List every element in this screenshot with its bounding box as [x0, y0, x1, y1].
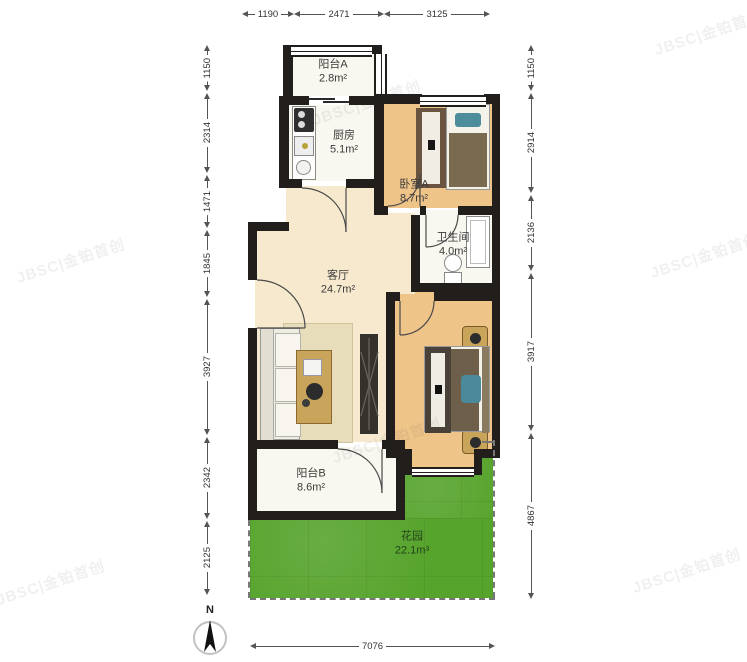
room-name: 厨房 — [330, 129, 358, 143]
dimension-right-4: 4867 — [524, 433, 538, 599]
room-area: 4.0m² — [437, 245, 470, 259]
room-name: 花园 — [395, 530, 429, 544]
dimension-right-3: 3917 — [524, 273, 538, 431]
room-area: 24.7m² — [321, 283, 355, 297]
dimension-left-5: 2342 — [200, 437, 214, 519]
dimension-right-2: 2136 — [524, 195, 538, 271]
dimension-top-0: 1190 — [242, 8, 294, 20]
room-label-garden: 花园 22.1m³ — [395, 530, 429, 559]
dimension-left-1: 2314 — [200, 93, 214, 173]
compass-icon — [188, 616, 232, 660]
room-area: 8.6m² — [296, 481, 325, 495]
room-name: 阳台B — [296, 467, 325, 481]
room-label-living-room: 客厅 24.7m² — [321, 269, 355, 298]
room-label-kitchen: 厨房 5.1m² — [330, 129, 358, 158]
dimension-bottom-0: 7076 — [250, 640, 495, 652]
dimension-top-1: 2471 — [294, 8, 384, 20]
north-arrow: N — [188, 604, 232, 662]
room-name: 客厅 — [321, 269, 355, 283]
room-name: 阳台A — [318, 58, 347, 72]
room-name: 卧室A — [399, 178, 428, 192]
dimension-left-6: 2125 — [200, 521, 214, 595]
room-area: 5.1m² — [330, 143, 358, 157]
floor-plan: 阳台A 2.8m² 厨房 5.1m² 卧室A 8.7m² 卫生间 4.0m² 客… — [0, 0, 747, 662]
room-area: 22.1m³ — [395, 544, 429, 558]
room-area: 2.8m² — [318, 72, 347, 86]
room-area: 8.7m² — [399, 192, 428, 206]
dimension-right-0: 1150 — [524, 45, 538, 91]
room-label-balcony-a: 阳台A 2.8m² — [318, 58, 347, 87]
dimension-top-2: 3125 — [384, 8, 490, 20]
dimension-left-4: 3927 — [200, 299, 214, 435]
room-label-bedroom-a: 卧室A 8.7m² — [399, 178, 428, 207]
dimension-left-0: 1150 — [200, 45, 214, 91]
room-name: 卫生间 — [437, 231, 470, 245]
dimension-right-1: 2914 — [524, 93, 538, 193]
north-label: N — [188, 604, 232, 616]
room-label-balcony-b: 阳台B 8.6m² — [296, 467, 325, 496]
dimension-left-2: 1471 — [200, 175, 214, 228]
dimension-left-3: 1845 — [200, 230, 214, 297]
room-label-bathroom: 卫生间 4.0m² — [437, 231, 470, 260]
